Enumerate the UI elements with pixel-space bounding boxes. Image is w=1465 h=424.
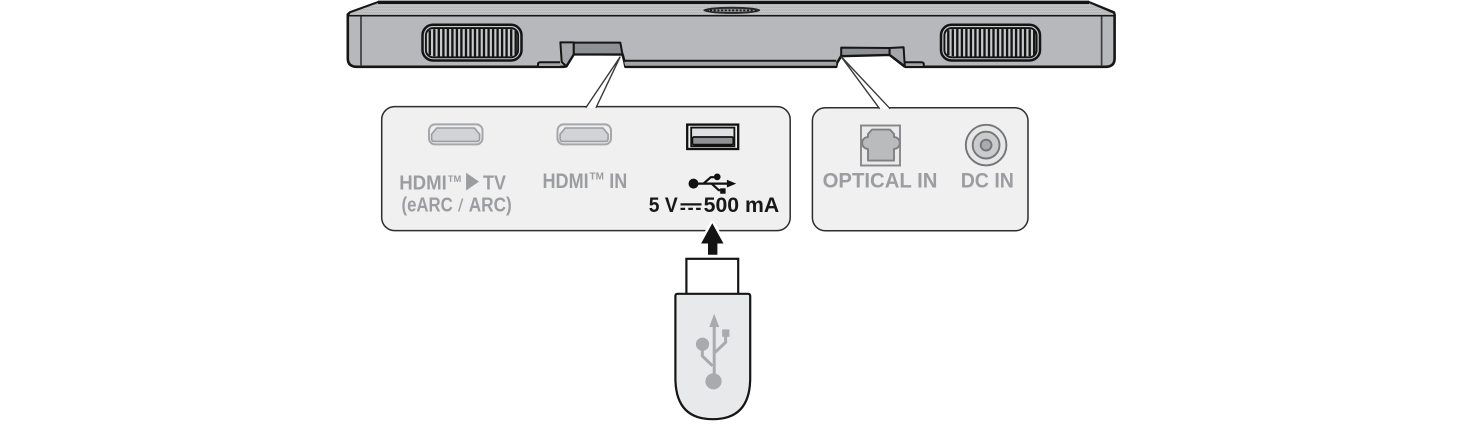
- svg-text:ARC): ARC): [469, 194, 512, 217]
- svg-text:500 mA: 500 mA: [704, 194, 780, 217]
- svg-text:IN: IN: [609, 170, 627, 193]
- svg-text:DC IN: DC IN: [961, 169, 1014, 192]
- svg-text:TM: TM: [590, 172, 604, 183]
- svg-text:(eARC: (eARC: [402, 194, 453, 217]
- svg-text:OPTICAL IN: OPTICAL IN: [823, 169, 938, 192]
- svg-text:5 V: 5 V: [649, 194, 678, 217]
- svg-text:TM: TM: [448, 174, 462, 185]
- svg-text:TV: TV: [483, 172, 506, 195]
- svg-text:HDMI: HDMI: [543, 170, 589, 193]
- svg-text:/: /: [458, 195, 464, 215]
- svg-text:HDMI: HDMI: [399, 172, 447, 195]
